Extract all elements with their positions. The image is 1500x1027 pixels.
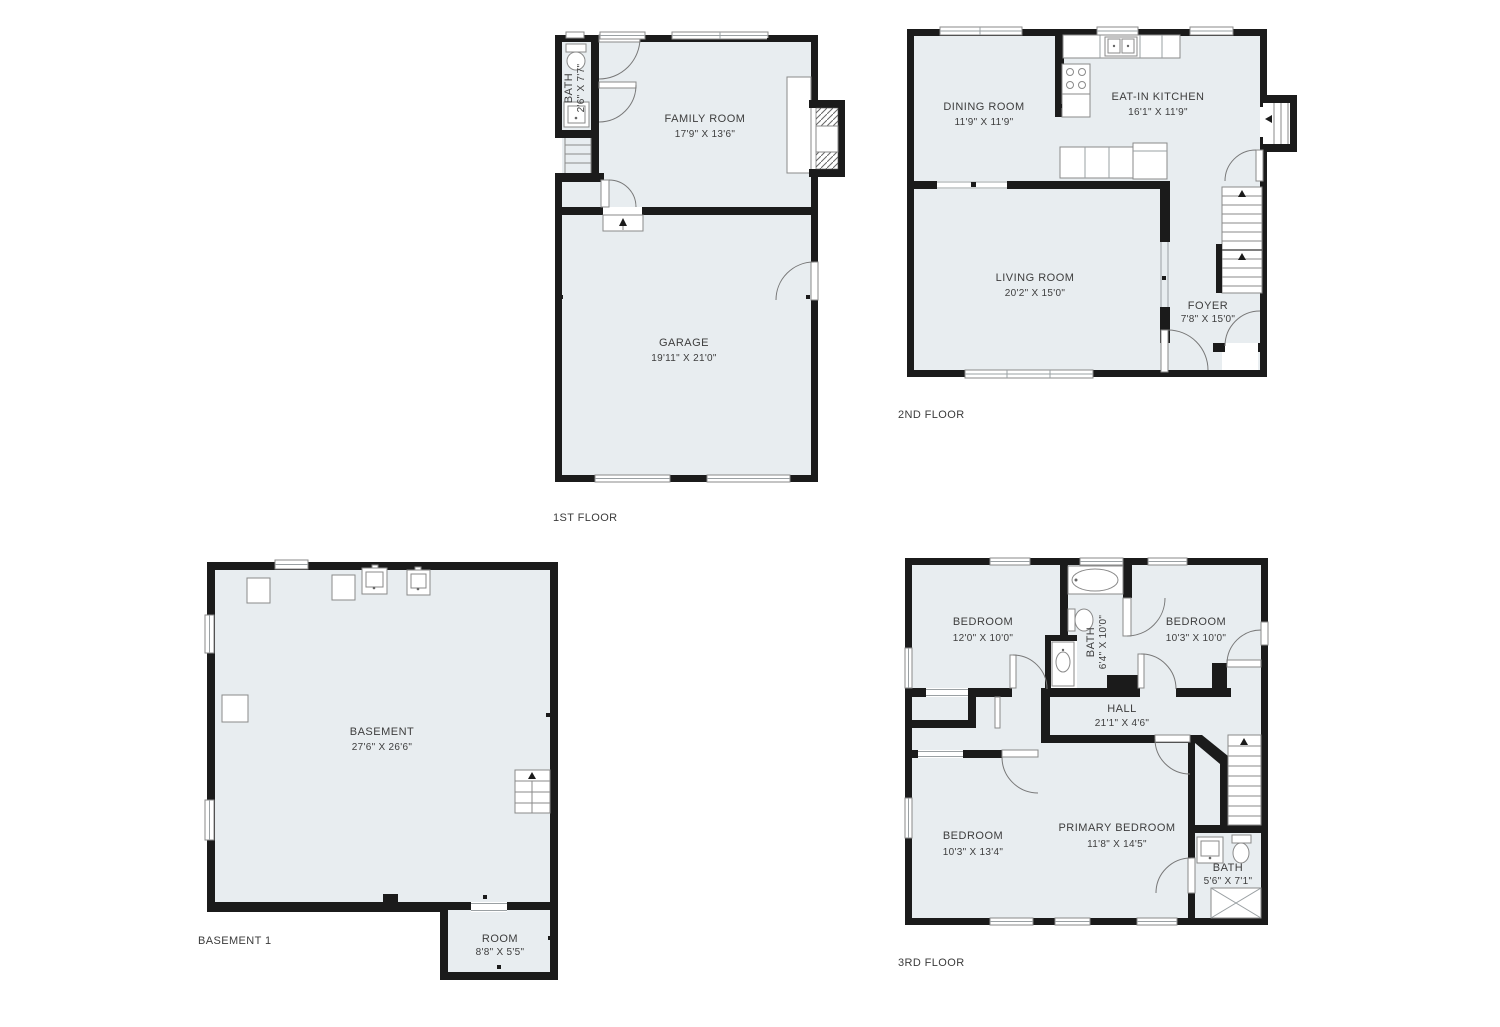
- room-dims: 10'3" X 10'0": [1166, 633, 1227, 644]
- second-floor-plan: DINING ROOM 11'9" X 11'9" EAT-IN KITCHEN…: [900, 24, 1305, 380]
- basement-plan: BASEMENT 27'6" X 26'6" ROOM 8'8" X 5'5": [200, 555, 570, 995]
- window-icon: [1261, 622, 1268, 645]
- basement-title: BASEMENT 1: [198, 935, 272, 947]
- window-icon: [566, 32, 584, 38]
- third-floor-plan: BEDROOM 12'0" X 10'0" BATH 6'4" X 10'0" …: [898, 550, 1275, 975]
- room-label: PRIMARY BEDROOM: [1058, 822, 1175, 834]
- floorplan-page: BATH 2'6" X 7'7" FAMILY ROOM 17'9" X 13'…: [0, 0, 1500, 1027]
- room-label: BEDROOM: [953, 616, 1013, 628]
- foyer-wall: [1160, 181, 1170, 242]
- closet-door-leaf: [995, 697, 1000, 728]
- room-dims: 11'8" X 14'5": [1087, 839, 1147, 850]
- hearth: [787, 77, 811, 173]
- room-label: BEDROOM: [1166, 616, 1226, 628]
- foyer-stairs: [1216, 187, 1262, 293]
- door-leaf: [1002, 750, 1038, 757]
- garage-wall: [555, 207, 603, 215]
- room-label: LIVING ROOM: [996, 272, 1075, 284]
- closet-door-leaf: [1227, 660, 1261, 667]
- door-leaf: [1010, 655, 1016, 688]
- room-label: BEDROOM: [943, 830, 1003, 842]
- refrigerator-icon: [1133, 143, 1167, 179]
- first-floor-structure: [555, 35, 818, 482]
- door-leaf: [1123, 598, 1131, 636]
- room-dims: 5'6" X 7'1": [1204, 876, 1253, 887]
- room-label: GARAGE: [659, 337, 709, 349]
- door-leaf: [1256, 150, 1263, 181]
- door-sill: [383, 894, 398, 903]
- toilet-icon: [1068, 609, 1075, 631]
- basement-stairs: [515, 770, 550, 813]
- room-dims: 16'1" X 11'9": [1128, 107, 1188, 118]
- second-floor-title: 2ND FLOOR: [898, 409, 965, 421]
- room-dims: 8'8" X 5'5": [476, 947, 525, 958]
- room-label: DINING ROOM: [943, 101, 1024, 113]
- room-label: ROOM: [482, 933, 518, 945]
- post: [247, 578, 270, 603]
- door-leaf: [1155, 735, 1190, 742]
- basement-structure: [207, 562, 558, 980]
- third-floor-stairs: [1228, 735, 1261, 825]
- room-label: FAMILY ROOM: [665, 113, 746, 125]
- room-dims: 27'6" X 26'6": [352, 742, 413, 753]
- room-dims: 17'9" X 13'6": [675, 129, 736, 140]
- third-floor-title: 3RD FLOOR: [898, 957, 965, 969]
- entry-stoop: [1222, 352, 1258, 370]
- room-dims: 7'8" X 15'0": [1181, 314, 1236, 325]
- cabinet: [1062, 94, 1090, 117]
- door-leaf: [1138, 654, 1144, 688]
- room-label: HALL: [1107, 703, 1137, 715]
- room-dims: 12'0" X 10'0": [953, 633, 1014, 644]
- room-dims: 6'4" X 10'0": [1098, 615, 1109, 670]
- door-leaf: [599, 82, 636, 88]
- first-floor-title: 1ST FLOOR: [553, 512, 618, 524]
- front-door-leaf: [1161, 330, 1168, 372]
- room-label: BATH: [563, 73, 575, 104]
- door-leaf: [1188, 858, 1195, 893]
- room-dims: 11'9" X 11'9": [955, 117, 1014, 128]
- stove-icon: [1062, 64, 1090, 94]
- bath-wall: [591, 35, 599, 173]
- toilet-icon: [566, 44, 586, 52]
- room-label: BATH: [1213, 862, 1244, 874]
- room-label: BATH: [1085, 627, 1097, 658]
- counter: [1060, 147, 1133, 178]
- room-dims: 10'3" X 13'4": [943, 847, 1004, 858]
- post: [332, 575, 355, 600]
- room-dims: 21'1" X 4'6": [1095, 718, 1150, 729]
- room-dims: 2'6" X 7'7": [576, 64, 587, 113]
- vanity-sink-icon: [1052, 642, 1074, 686]
- room-dims: 19'11" X 21'0": [651, 353, 717, 364]
- garage-door-leaf: [811, 262, 818, 300]
- room-label: EAT-IN KITCHEN: [1112, 91, 1205, 103]
- door-leaf: [601, 180, 609, 207]
- room-label: FOYER: [1188, 300, 1228, 312]
- post: [222, 695, 248, 722]
- toilet-icon: [1232, 835, 1251, 843]
- room-label: BASEMENT: [350, 726, 415, 738]
- first-floor-plan: BATH 2'6" X 7'7" FAMILY ROOM 17'9" X 13'…: [551, 30, 851, 490]
- room-dims: 20'2" X 15'0": [1005, 288, 1066, 299]
